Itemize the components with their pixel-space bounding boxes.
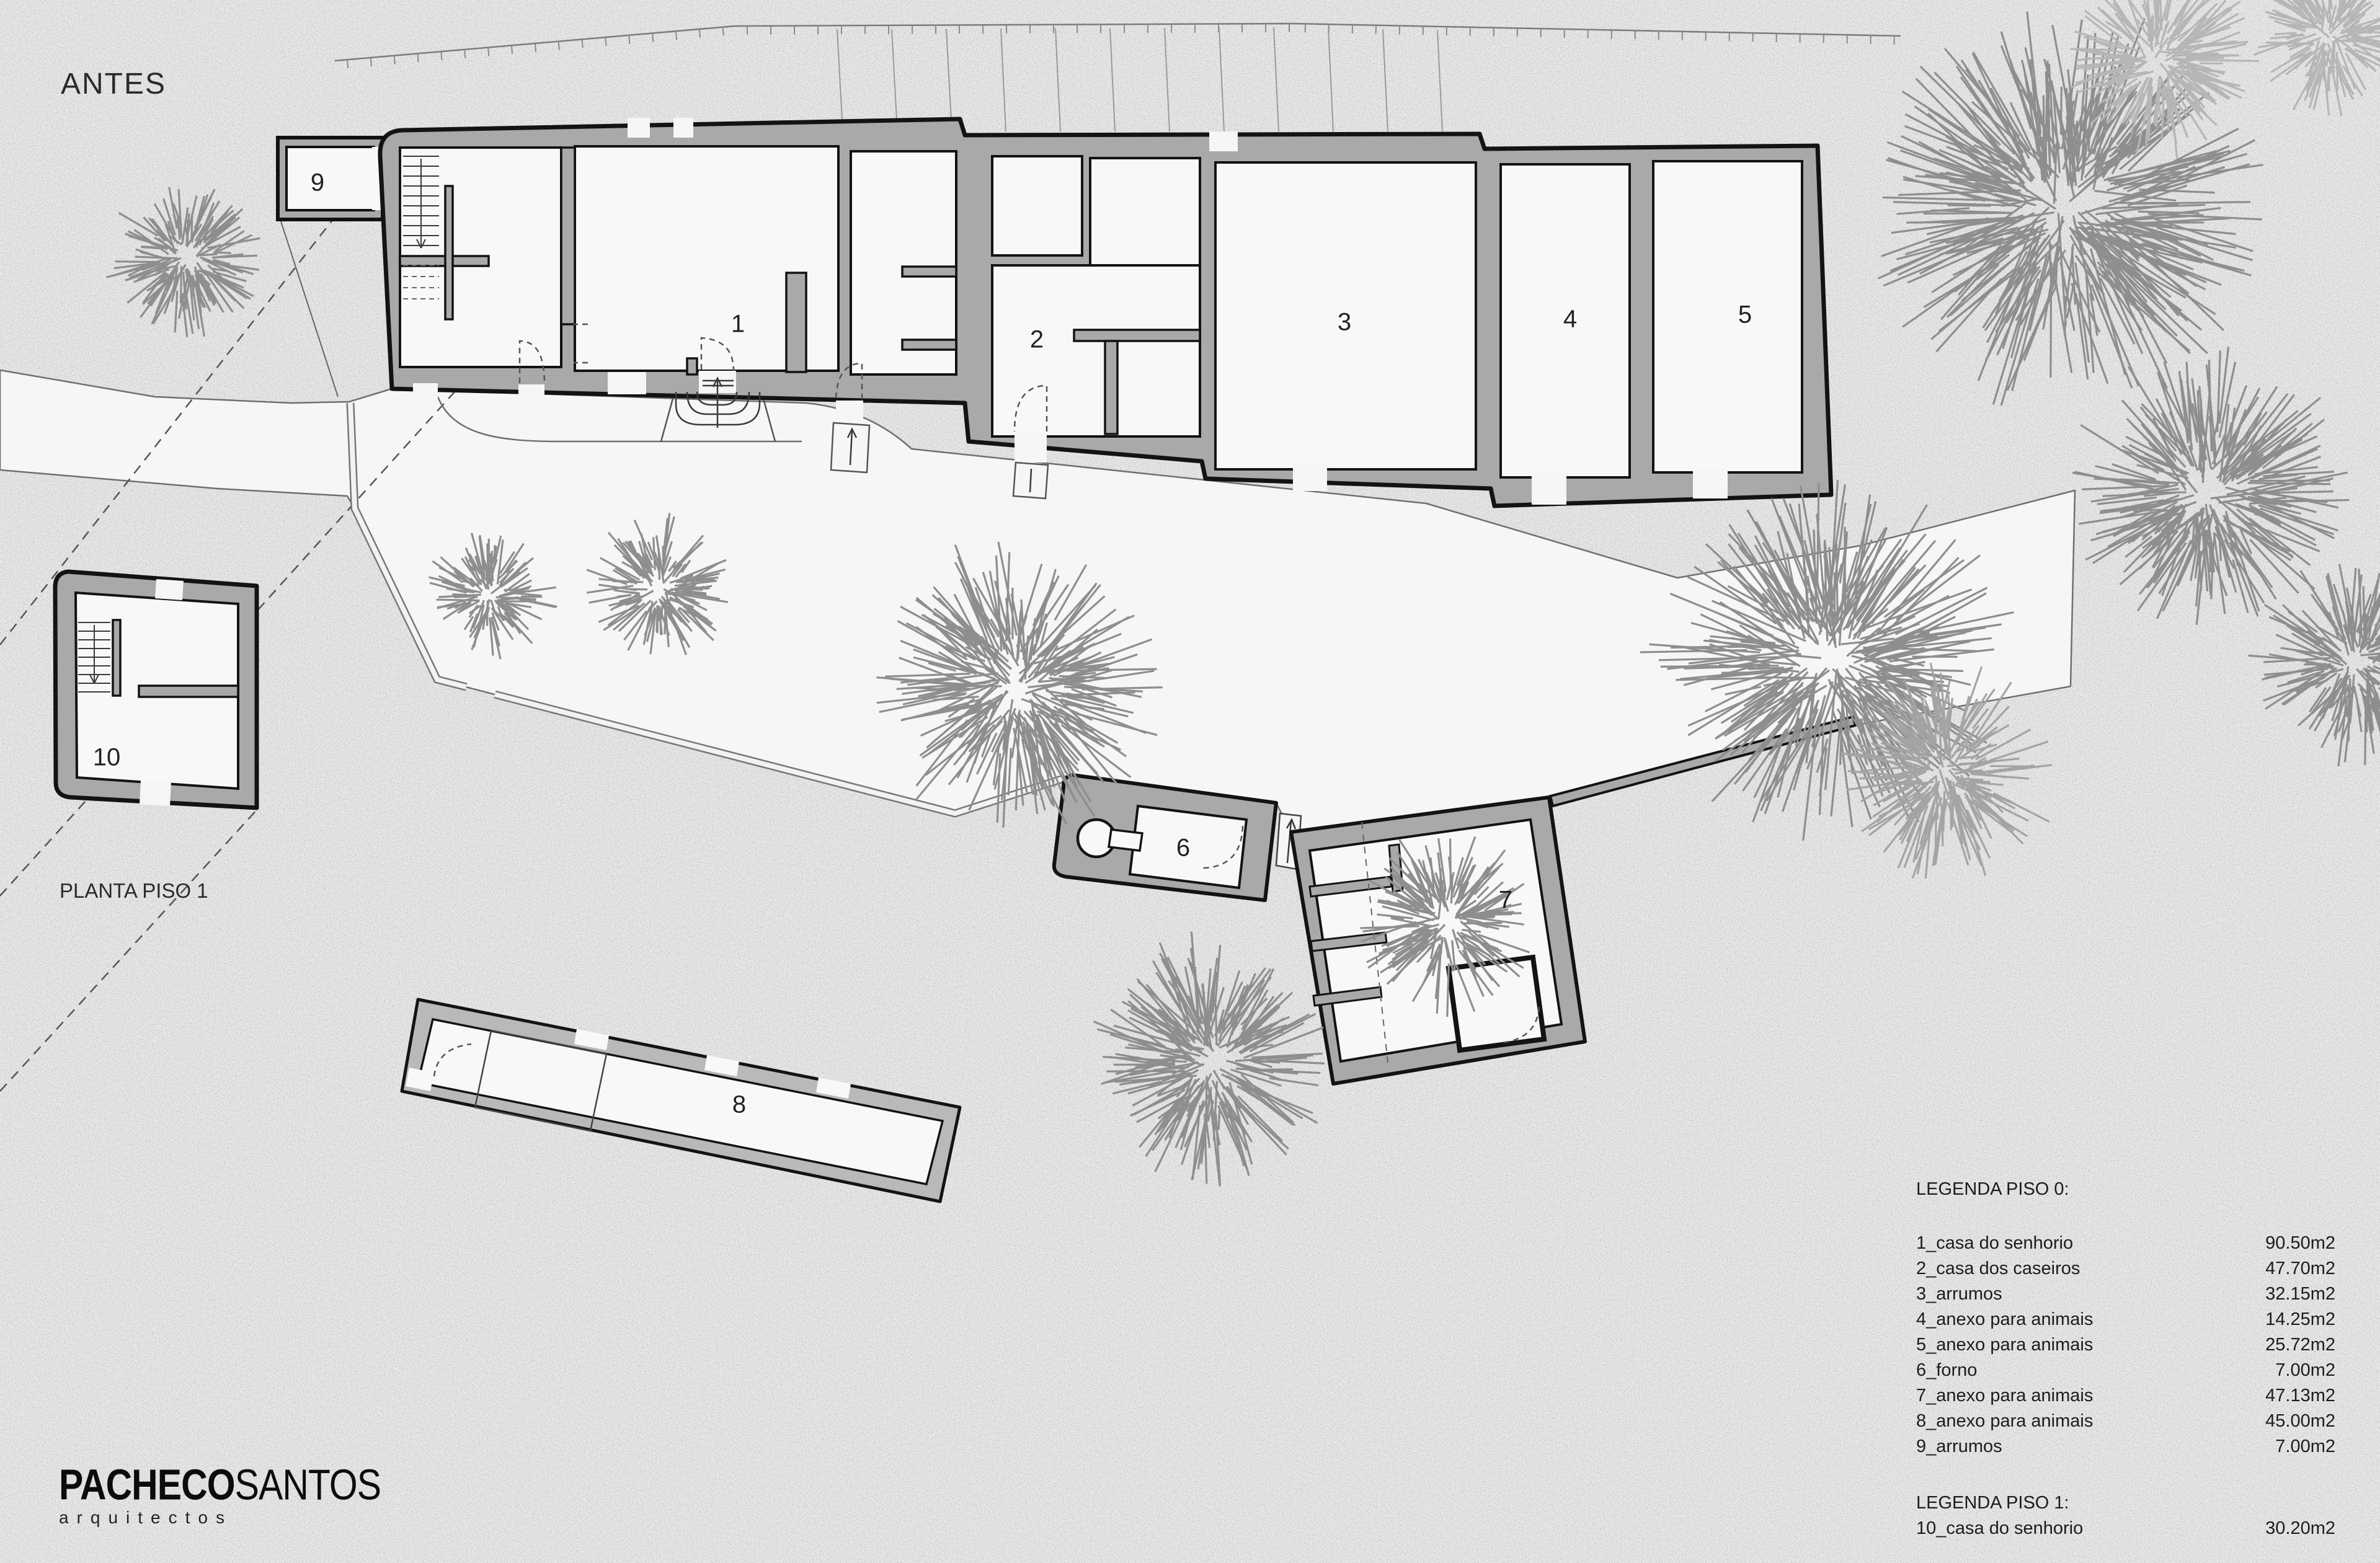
legend-row: 8_anexo para animais45.00m2 — [1916, 1409, 2335, 1434]
legend-row: 7_anexo para animais47.13m2 — [1916, 1383, 2335, 1409]
room-label-6: 6 — [1176, 835, 1190, 862]
legend-item-area: 30.20m2 — [2265, 1516, 2335, 1541]
legend-item-area: 47.70m2 — [2265, 1256, 2335, 1282]
room-label-2: 2 — [1030, 326, 1044, 354]
room-label-8: 8 — [732, 1091, 746, 1119]
legend-item-area: 7.00m2 — [2275, 1434, 2335, 1459]
legend-row: 6_forno7.00m2 — [1916, 1358, 2335, 1383]
drawing-title: ANTES — [61, 67, 166, 101]
floor-plan-note: PLANTA PISO 1 — [60, 879, 208, 903]
side-step — [831, 423, 869, 472]
legend-item-name: 3_arrumos — [1916, 1282, 2002, 1307]
legend-item-area: 45.00m2 — [2265, 1409, 2335, 1434]
legend-item-area: 25.72m2 — [2265, 1332, 2335, 1358]
legend-item-name: 2_casa dos caseiros — [1916, 1256, 2080, 1282]
room-label-9: 9 — [311, 169, 324, 197]
logo-part-regular: SANTOS — [235, 1461, 381, 1509]
logo-part-bold: PACHECO — [59, 1461, 235, 1509]
room-label-10: 10 — [93, 744, 121, 772]
inner-room — [1449, 957, 1544, 1050]
legend-item-area: 32.15m2 — [2265, 1282, 2335, 1307]
legend-row: 9_arrumos7.00m2 — [1916, 1434, 2335, 1459]
legend-item-name: 4_anexo para animais — [1916, 1307, 2093, 1332]
legend-piso1-title: LEGENDA PISO 1: — [1916, 1490, 2335, 1516]
oven-mouth — [1109, 830, 1142, 851]
legend-item-name: 10_casa do senhorio — [1916, 1516, 2083, 1541]
legend-item-area: 7.00m2 — [2275, 1358, 2335, 1383]
legend: LEGENDA PISO 0: 1_casa do senhorio90.50m… — [1916, 1177, 2335, 1541]
studio-logo: PACHECOSANTOS arquitectos — [59, 1463, 409, 1526]
legend-item-name: 8_anexo para animais — [1916, 1409, 2093, 1434]
legend-row: 4_anexo para animais14.25m2 — [1916, 1307, 2335, 1332]
room-label-4: 4 — [1563, 306, 1577, 334]
legend-row: 1_casa do senhorio90.50m2 — [1916, 1231, 2335, 1256]
legend-item-name: 9_arrumos — [1916, 1434, 2002, 1459]
room-label-3: 3 — [1338, 309, 1351, 337]
logo-subtitle: arquitectos — [59, 1509, 409, 1526]
legend-item-area: 14.25m2 — [2265, 1307, 2335, 1332]
logo-wordmark: PACHECOSANTOS — [59, 1463, 381, 1506]
legend-item-name: 7_anexo para animais — [1916, 1383, 2093, 1409]
legend-item-name: 5_anexo para animais — [1916, 1332, 2093, 1358]
legend-row: 10_casa do senhorio30.20m2 — [1916, 1516, 2335, 1541]
room2-step — [1013, 463, 1048, 498]
room-label-1: 1 — [731, 311, 745, 339]
legend-row: 5_anexo para animais25.72m2 — [1916, 1332, 2335, 1358]
building-10-piso1 — [55, 572, 257, 808]
legend-row: 3_arrumos32.15m2 — [1916, 1282, 2335, 1307]
legend-item-name: 6_forno — [1916, 1358, 1977, 1383]
legend-item-area: 90.50m2 — [2265, 1231, 2335, 1256]
legend-piso0-title: LEGENDA PISO 0: — [1916, 1177, 2335, 1202]
annex-room-9 — [278, 138, 383, 219]
legend-item-name: 1_casa do senhorio — [1916, 1231, 2073, 1256]
room-label-5: 5 — [1738, 301, 1752, 329]
legend-row: 2_casa dos caseiros47.70m2 — [1916, 1256, 2335, 1282]
site-plan-sheet: ANTES PLANTA PISO 1 1 2 3 4 5 6 7 8 9 10… — [0, 0, 2380, 1563]
legend-item-area: 47.13m2 — [2265, 1383, 2335, 1409]
room-label-7: 7 — [1499, 887, 1512, 914]
